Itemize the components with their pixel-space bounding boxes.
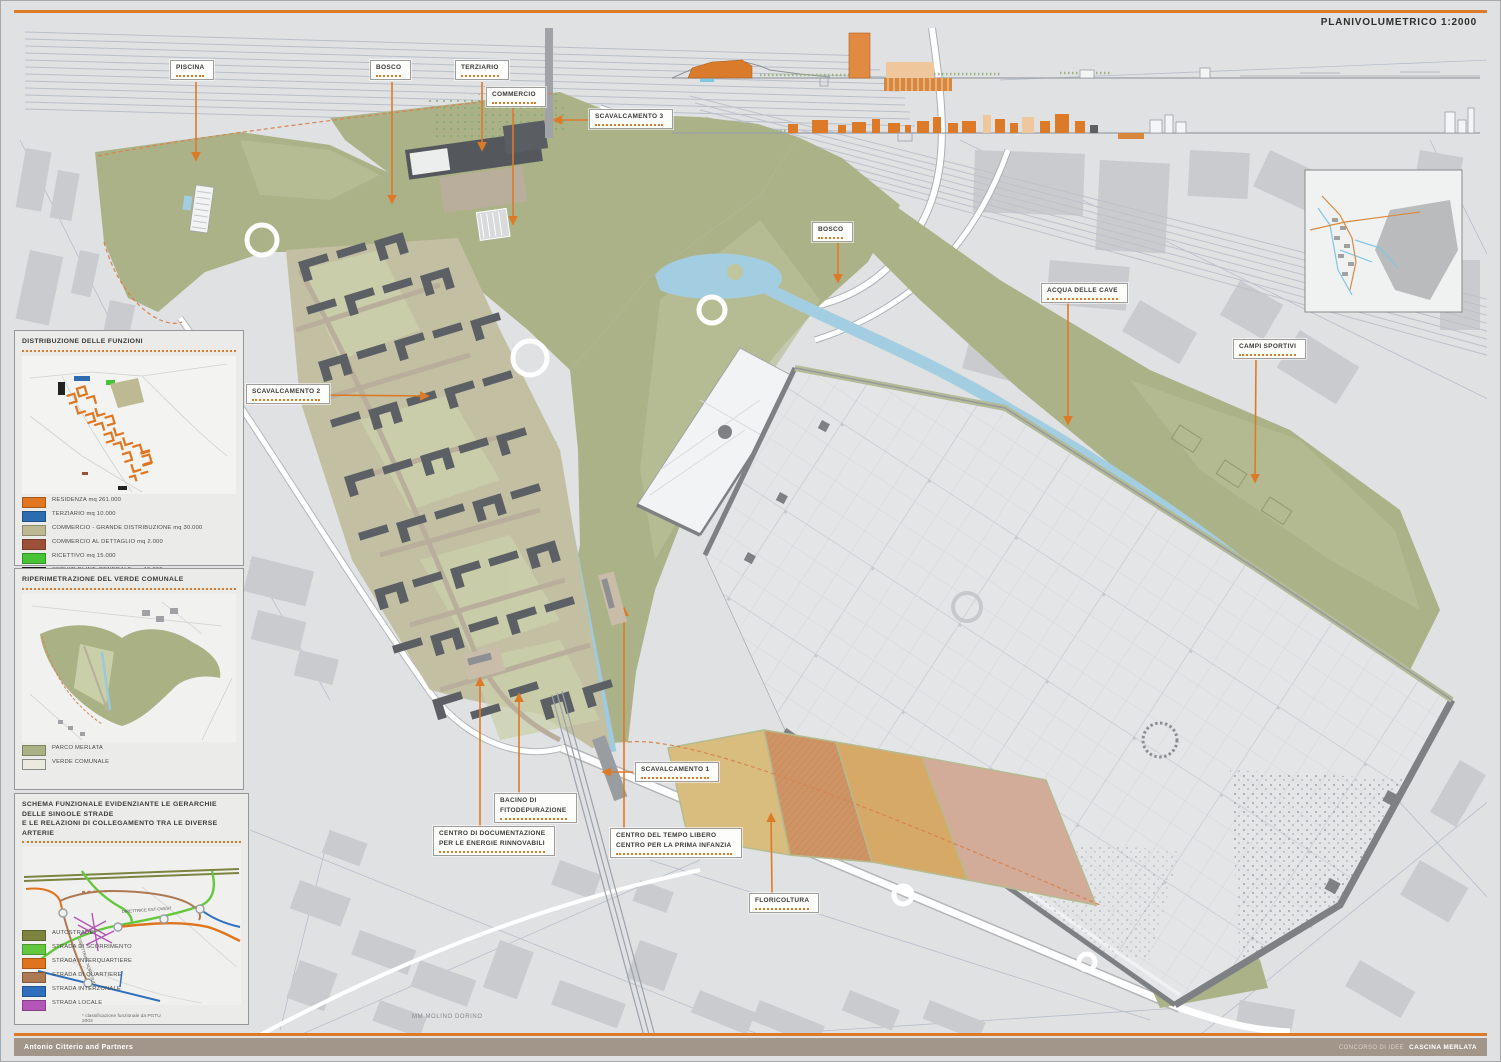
label-dotted-rule [252, 399, 320, 401]
verde-diagram [22, 594, 236, 742]
legend-swatch [22, 511, 46, 522]
legend-row: AUTOSTRADE [22, 930, 172, 941]
label-dotted-rule [500, 818, 567, 820]
page-title: PLANIVOLUMETRICO 1:2000 [1321, 17, 1477, 28]
legend-row: RICETTIVO mq 15.000 [22, 553, 236, 564]
section-tower [849, 33, 870, 78]
map-label-bosco-1: BOSCO [370, 60, 411, 80]
legend-swatch [22, 944, 46, 955]
legend-row: STRADA DI QUARTIERE [22, 972, 172, 983]
map-label-campi-sportivi: CAMPI SPORTIVI [1233, 339, 1306, 359]
label-dotted-rule [755, 908, 809, 910]
legend-swatch [22, 958, 46, 969]
legend-row: COMMERCIO - GRANDE DISTRIBUZIONE mq 30.0… [22, 525, 236, 536]
legend-swatch [22, 1000, 46, 1011]
legend-row: STRADA LOCALE [22, 1000, 172, 1011]
map-label-centro-tempo-libero: CENTRO DEL TEMPO LIBERO CENTRO PER LA PR… [610, 828, 742, 858]
label-dotted-rule [376, 75, 401, 77]
funzioni-diagram [22, 356, 236, 494]
label-dotted-rule [176, 75, 204, 77]
map-label-scavalcamento-2: SCAVALCAMENTO 2 [246, 384, 330, 404]
inset-key-map [1305, 170, 1462, 312]
footer-bar: Antonio Citterio and Partners CONCORSO D… [14, 1038, 1487, 1056]
label-dotted-rule [492, 102, 536, 104]
label-dotted-rule [439, 851, 545, 853]
top-orange-rule [14, 10, 1487, 13]
panel-verde-comunale: RIPERIMETRAZIONE DEL VERDE COMUNALE PARC… [14, 568, 244, 790]
legend-swatch [22, 930, 46, 941]
map-label-scavalcamento-1: SCAVALCAMENTO 1 [635, 762, 719, 782]
legend-swatch [22, 972, 46, 983]
legend-swatch [22, 759, 46, 770]
schema-legend: AUTOSTRADE STRADA DI SCORRIMENTO STRADA … [22, 930, 172, 1024]
label-dotted-rule [1047, 298, 1118, 300]
map-label-acqua-delle-cave: ACQUA DELLE CAVE [1041, 283, 1128, 303]
legend-row: STRADA INTERZONALE [22, 986, 172, 997]
label-dotted-rule [595, 124, 663, 126]
label-dotted-rule [616, 853, 732, 855]
label-dotted-rule [1239, 354, 1296, 356]
legend-row: STRADA INTERQUARTIERE [22, 958, 172, 969]
schema-note: * classificazione funzionale da PGTU 200… [82, 1014, 172, 1024]
map-label-scavalcamento-3: SCAVALCAMENTO 3 [589, 109, 673, 129]
verde-legend: PARCO MERLATA VERDE COMUNALE [22, 745, 236, 770]
legend-swatch [22, 525, 46, 536]
masterplan-sheet: PLANIVOLUMETRICO 1:2000 [0, 0, 1501, 1062]
panel-title: SCHEMA FUNZIONALE EVIDENZIANTE LE GERARC… [22, 800, 241, 819]
map-label-terziario: TERZIARIO [455, 60, 509, 80]
legend-swatch [22, 497, 46, 508]
legend-row: PARCO MERLATA [22, 745, 236, 756]
label-dotted-rule [461, 75, 499, 77]
scavalcamento-3-bridge [545, 28, 553, 138]
metro-station-label: MM MOLINO DORINO [412, 1014, 483, 1020]
legend-row: VERDE COMUNALE [22, 759, 236, 770]
panel-dotted-rule [22, 350, 236, 352]
legend-swatch [22, 745, 46, 756]
label-dotted-rule [818, 237, 843, 239]
panel-title: RIPERIMETRAZIONE DEL VERDE COMUNALE [22, 575, 236, 585]
panel-dotted-rule [22, 841, 241, 843]
map-label-commercio: COMMERCIO [486, 87, 546, 107]
funzioni-legend: RESIDENZA mq 261.000 TERZIARIO mq 10.000… [22, 497, 236, 578]
competition-name: CONCORSO DI IDEECASCINA MERLATA [1339, 1044, 1477, 1051]
legend-row: RESIDENZA mq 261.000 [22, 497, 236, 508]
legend-swatch [22, 553, 46, 564]
panel-title: E LE RELAZIONI DI COLLEGAMENTO TRA LE DI… [22, 819, 241, 838]
panel-schema-strade: SCHEMA FUNZIONALE EVIDENZIANTE LE GERARC… [14, 793, 249, 1025]
panel-distribuzione-funzioni: DISTRIBUZIONE DELLE FUNZIONI [14, 330, 244, 566]
legend-row: TERZIARIO mq 10.000 [22, 511, 236, 522]
map-label-bacino: BACINO DI FITODEPURAZIONE [494, 793, 577, 823]
legend-swatch [22, 986, 46, 997]
map-label-centro-documentazione: CENTRO DI DOCUMENTAZIONE PER LE ENERGIE … [433, 826, 555, 856]
legend-row: COMMERCIO AL DETTAGLIO mq 2.000 [22, 539, 236, 550]
map-label-bosco-2: BOSCO [812, 222, 853, 242]
label-dotted-rule [641, 777, 709, 779]
map-label-piscina: PISCINA [170, 60, 214, 80]
studio-name: Antonio Citterio and Partners [24, 1044, 133, 1051]
footer-orange-rule [14, 1033, 1487, 1036]
legend-swatch [22, 539, 46, 550]
legend-row: STRADA DI SCORRIMENTO [22, 944, 172, 955]
panel-dotted-rule [22, 588, 236, 590]
map-label-floricoltura: FLORICOLTURA [749, 893, 819, 913]
panel-title: DISTRIBUZIONE DELLE FUNZIONI [22, 337, 236, 347]
